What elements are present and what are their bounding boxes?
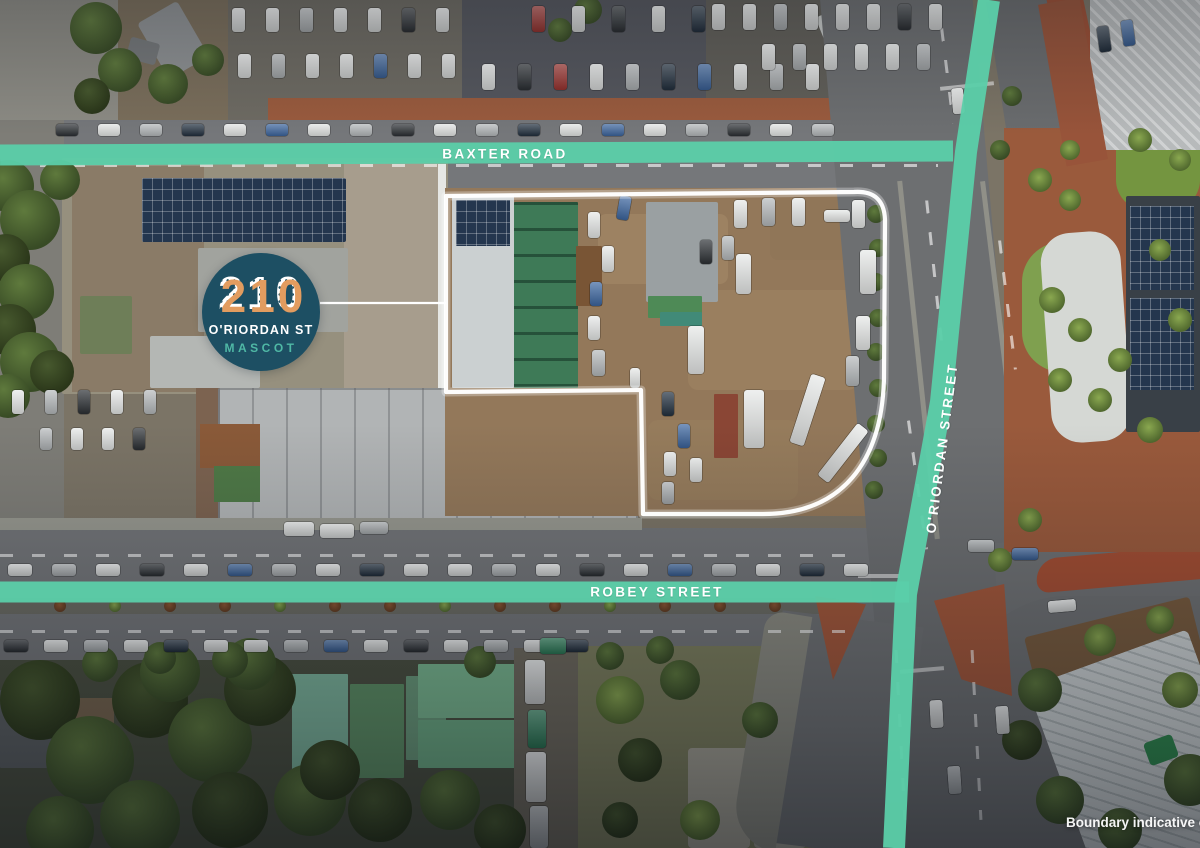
property-boundary-outline	[446, 192, 885, 514]
property-boundary-glow	[446, 192, 885, 514]
aerial-site-map: QANTAS DRIVE QANTAS DRIVE BAXTER ROAD RO…	[0, 0, 1200, 848]
map-overlay-graphics	[0, 0, 1200, 848]
oriordan-street-highlight-bar	[894, 0, 989, 848]
baxter-road-highlight-bar	[0, 151, 953, 155]
